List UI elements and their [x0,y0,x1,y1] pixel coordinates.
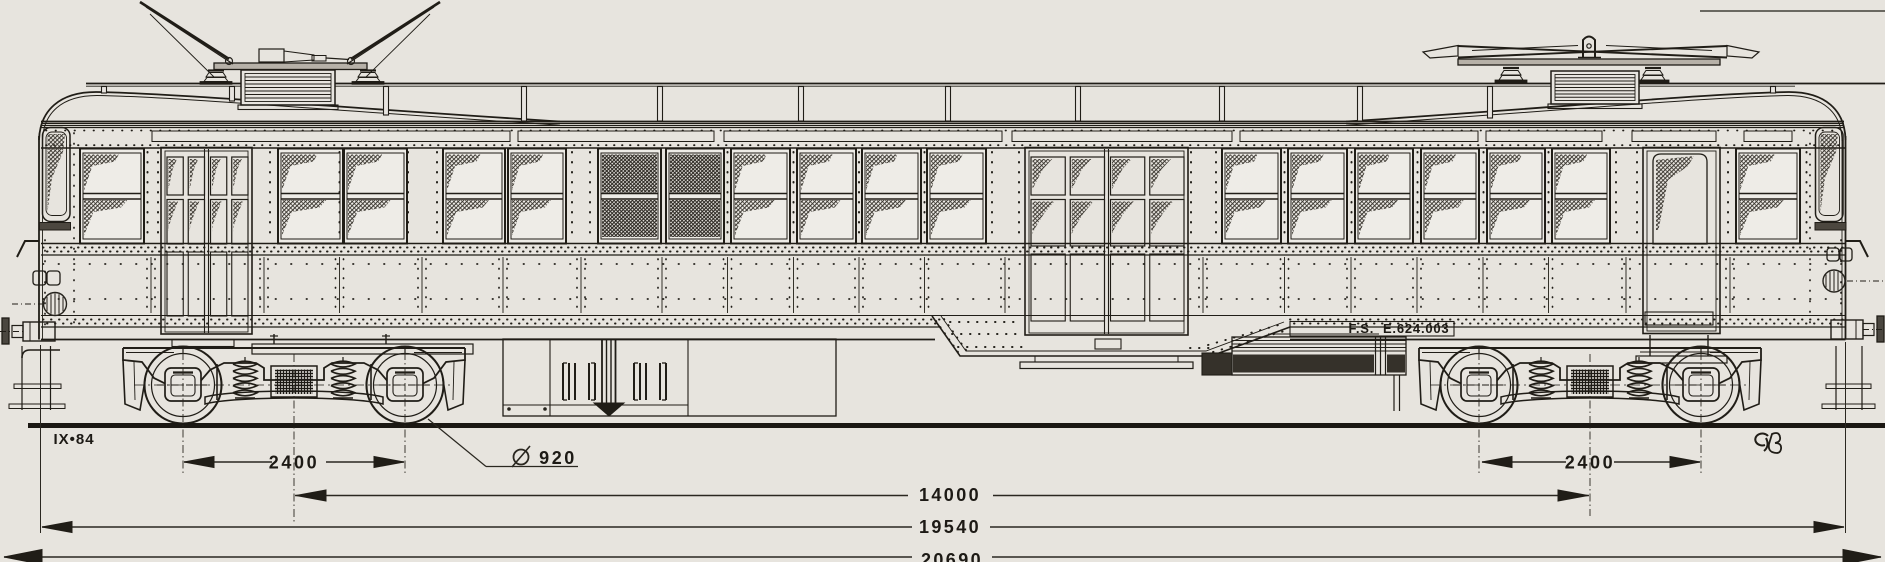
svg-text:F.S. E.624.003: F.S. E.624.003 [1349,321,1450,336]
svg-text:2400: 2400 [269,453,319,473]
svg-text:20690: 20690 [921,550,983,562]
svg-text:14000: 14000 [919,485,981,505]
svg-text:920: 920 [539,448,577,468]
svg-text:2400: 2400 [1565,453,1615,473]
svg-text:19540: 19540 [919,517,981,537]
svg-text:IX•84: IX•84 [53,431,94,448]
